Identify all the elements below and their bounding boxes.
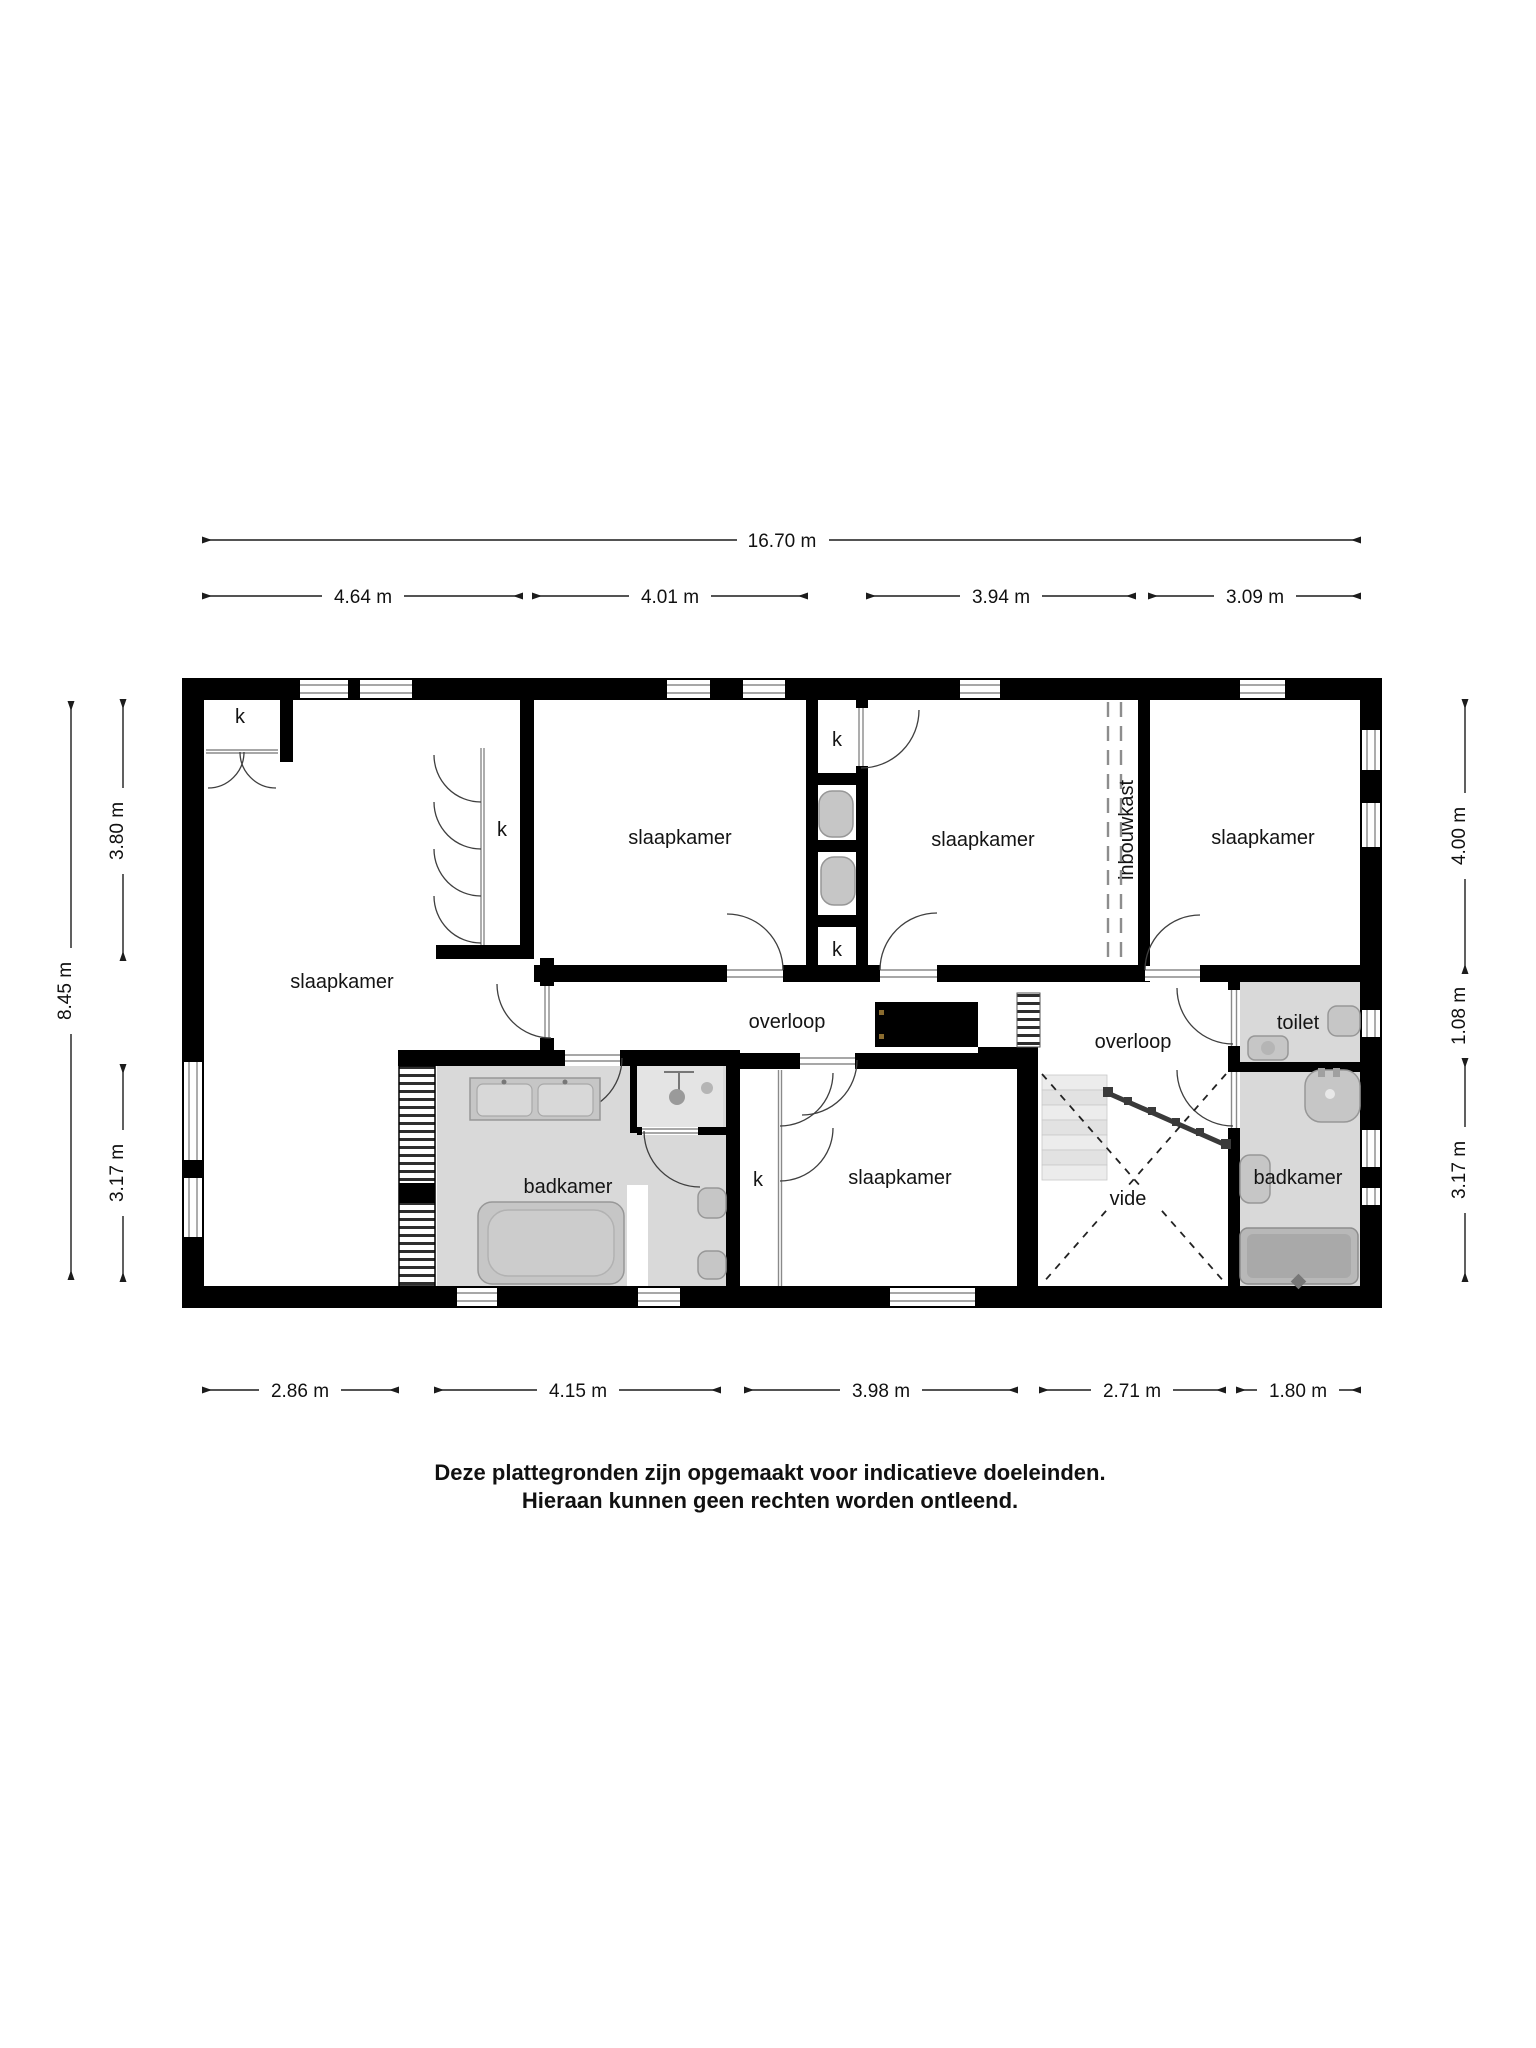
window: [1362, 1188, 1380, 1205]
disclaimer-line-2: Hieraan kunnen geen rechten worden ontle…: [522, 1488, 1018, 1513]
dimensions-top: 16.70 m 4.64 m 4.01 m 3.94 m 3.09 m: [203, 527, 1360, 609]
window: [457, 1288, 497, 1306]
radiator: [399, 1066, 435, 1286]
dim-bottom-seg-1: 2.86 m: [271, 1381, 329, 1402]
window: [743, 680, 785, 698]
dim-left-seg-2: 3.17 m: [107, 1144, 128, 1202]
dim-right-seg-2: 1.08 m: [1449, 987, 1470, 1045]
label-bathroom-left: badkamer: [524, 1176, 613, 1198]
dim-left-total: 8.45 m: [55, 962, 76, 1020]
window: [1362, 1130, 1380, 1167]
door-stack-closet: [857, 708, 919, 768]
tap-icon: [1318, 1068, 1325, 1077]
window: [890, 1288, 975, 1306]
label-bedroom-2: slaapkamer: [628, 827, 732, 849]
partition: [627, 1185, 648, 1286]
dimensions-right: 4.00 m 1.08 m 3.17 m: [1449, 700, 1478, 1281]
floor-plan: 16.70 m 4.64 m 4.01 m 3.94 m 3.09 m 2.86…: [0, 0, 1536, 2048]
window: [638, 1288, 680, 1306]
floor-plan-page: 16.70 m 4.64 m 4.01 m 3.94 m 3.09 m 2.86…: [0, 0, 1536, 2048]
window: [1362, 730, 1380, 770]
cabinet-hinge-icon: [879, 1010, 884, 1015]
door-bedroom-3: [880, 913, 937, 981]
label-closet-bottom: k: [753, 1169, 764, 1191]
dim-top-total: 16.70 m: [748, 531, 817, 552]
dim-top-seg-2: 4.01 m: [641, 587, 699, 608]
shower-control-icon: [701, 1082, 713, 1094]
dim-bottom-seg-4: 2.71 m: [1103, 1381, 1161, 1402]
radiator: [1017, 993, 1040, 1047]
label-void: vide: [1110, 1188, 1147, 1210]
sink-drain: [1325, 1089, 1335, 1099]
washbasin: [819, 791, 853, 837]
bathtub-inner: [488, 1210, 614, 1276]
shower-tray-inner: [1247, 1234, 1351, 1278]
radiator-block: [399, 1183, 435, 1203]
window: [1240, 680, 1285, 698]
label-bedroom-3: slaapkamer: [931, 829, 1035, 851]
door-bedroom-left: [497, 984, 551, 1038]
basin: [477, 1084, 532, 1116]
label-closet-topleft: k: [235, 706, 246, 728]
dim-bottom-seg-3: 3.98 m: [852, 1381, 910, 1402]
label-bedroom-left: slaapkamer: [290, 971, 394, 993]
window: [667, 680, 710, 698]
door-toilet: [1177, 988, 1239, 1046]
dim-bottom-seg-2: 4.15 m: [549, 1381, 607, 1402]
dim-top-seg-3: 3.94 m: [972, 587, 1030, 608]
wardrobe-doors: [434, 748, 486, 945]
label-closet-stack-bottom: k: [832, 939, 843, 961]
closet-door: [206, 748, 278, 788]
cabinet: [875, 1002, 978, 1047]
toilet-fixture: [1328, 1006, 1360, 1036]
dim-top-seg-1: 4.64 m: [334, 587, 392, 608]
window: [300, 680, 348, 698]
dim-left-seg-1: 3.80 m: [107, 802, 128, 860]
label-landing-left: overloop: [749, 1011, 826, 1033]
dim-bottom-seg-5: 1.80 m: [1269, 1381, 1327, 1402]
dimensions-left: 8.45 m 3.80 m 3.17 m: [55, 700, 136, 1281]
window: [1362, 1010, 1380, 1037]
tap-icon: [563, 1080, 568, 1085]
label-closet-stack-top: k: [832, 729, 843, 751]
label-built-in-closet: inbouwkast: [1116, 780, 1138, 881]
disclaimer: Deze plattegronden zijn opgemaakt voor i…: [434, 1460, 1105, 1513]
window: [184, 1178, 202, 1237]
closet-doors-bottom: [777, 1070, 833, 1286]
window: [960, 680, 1000, 698]
railing: [1103, 1087, 1231, 1149]
washbasin: [821, 857, 855, 905]
toilet-fixture: [698, 1188, 726, 1218]
label-bathroom-right: badkamer: [1254, 1167, 1343, 1189]
door-bedroom-2: [727, 914, 783, 981]
bidet-fixture: [698, 1251, 726, 1279]
label-toilet: toilet: [1277, 1012, 1320, 1034]
window: [1362, 803, 1380, 847]
label-bedroom-4: slaapkamer: [1211, 827, 1315, 849]
tap-icon: [502, 1080, 507, 1085]
door-bedroom-4: [1145, 915, 1200, 981]
disclaimer-line-1: Deze plattegronden zijn opgemaakt voor i…: [434, 1460, 1105, 1485]
tap-icon: [1333, 1068, 1340, 1077]
label-bedroom-bottom: slaapkamer: [848, 1167, 952, 1189]
dimensions-bottom: 2.86 m 4.15 m 3.98 m 2.71 m 1.80 m: [203, 1377, 1360, 1403]
cabinet-hinge-icon: [879, 1034, 884, 1039]
dim-right-seg-1: 4.00 m: [1449, 807, 1470, 865]
window: [184, 1062, 202, 1160]
label-closet-wardrobe: k: [497, 819, 508, 841]
basin-bowl: [1261, 1041, 1275, 1055]
dim-top-seg-4: 3.09 m: [1226, 587, 1284, 608]
label-landing-right: overloop: [1095, 1031, 1172, 1053]
door-bedroom-bottom: [800, 1054, 857, 1115]
dim-right-seg-3: 3.17 m: [1449, 1141, 1470, 1199]
basin: [538, 1084, 593, 1116]
shower-drain-icon: [669, 1089, 685, 1105]
stairs: [1042, 1075, 1107, 1180]
window: [360, 680, 412, 698]
